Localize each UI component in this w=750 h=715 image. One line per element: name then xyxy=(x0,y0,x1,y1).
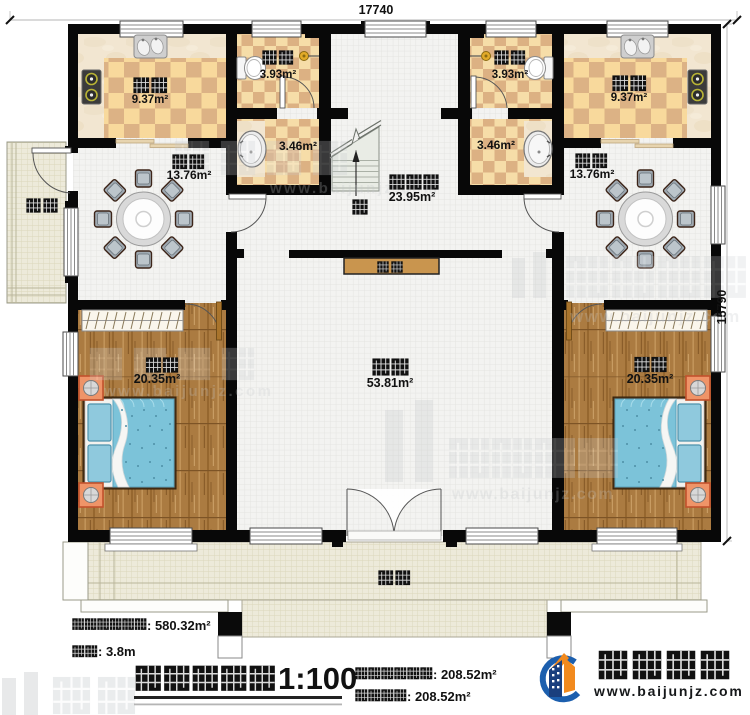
svg-text:17740: 17740 xyxy=(359,3,394,17)
svg-text:9.37m²: 9.37m² xyxy=(611,92,648,104)
svg-text:15790: 15790 xyxy=(715,290,729,325)
svg-text:3.46m²: 3.46m² xyxy=(477,138,515,152)
svg-text:3.46m²: 3.46m² xyxy=(279,139,317,153)
svg-text:13.76m²: 13.76m² xyxy=(570,167,615,181)
svg-text:53.81m²: 53.81m² xyxy=(367,376,414,390)
svg-text:: 3.8m: : 3.8m xyxy=(98,644,136,659)
svg-text:: 208.52m²: : 208.52m² xyxy=(407,689,471,704)
svg-text:9.37m²: 9.37m² xyxy=(132,94,169,106)
svg-text:www.baijunjz.com: www.baijunjz.com xyxy=(451,486,614,503)
svg-text:: 580.32m²: : 580.32m² xyxy=(147,618,211,633)
svg-text:: 208.52m²: : 208.52m² xyxy=(433,667,497,682)
svg-text:20.35m²: 20.35m² xyxy=(627,372,674,386)
svg-text:3.93m²: 3.93m² xyxy=(492,69,529,81)
svg-text:1:100: 1:100 xyxy=(278,661,357,696)
svg-text:www.baijunjz.com: www.baijunjz.com xyxy=(103,383,273,400)
svg-text:www.baijunjz.com: www.baijunjz.com xyxy=(593,683,744,699)
svg-text:3.93m²: 3.93m² xyxy=(260,69,297,81)
svg-text:20.35m²: 20.35m² xyxy=(134,372,181,386)
svg-text:13.76m²: 13.76m² xyxy=(167,168,212,182)
svg-text:23.95m²: 23.95m² xyxy=(389,190,436,204)
